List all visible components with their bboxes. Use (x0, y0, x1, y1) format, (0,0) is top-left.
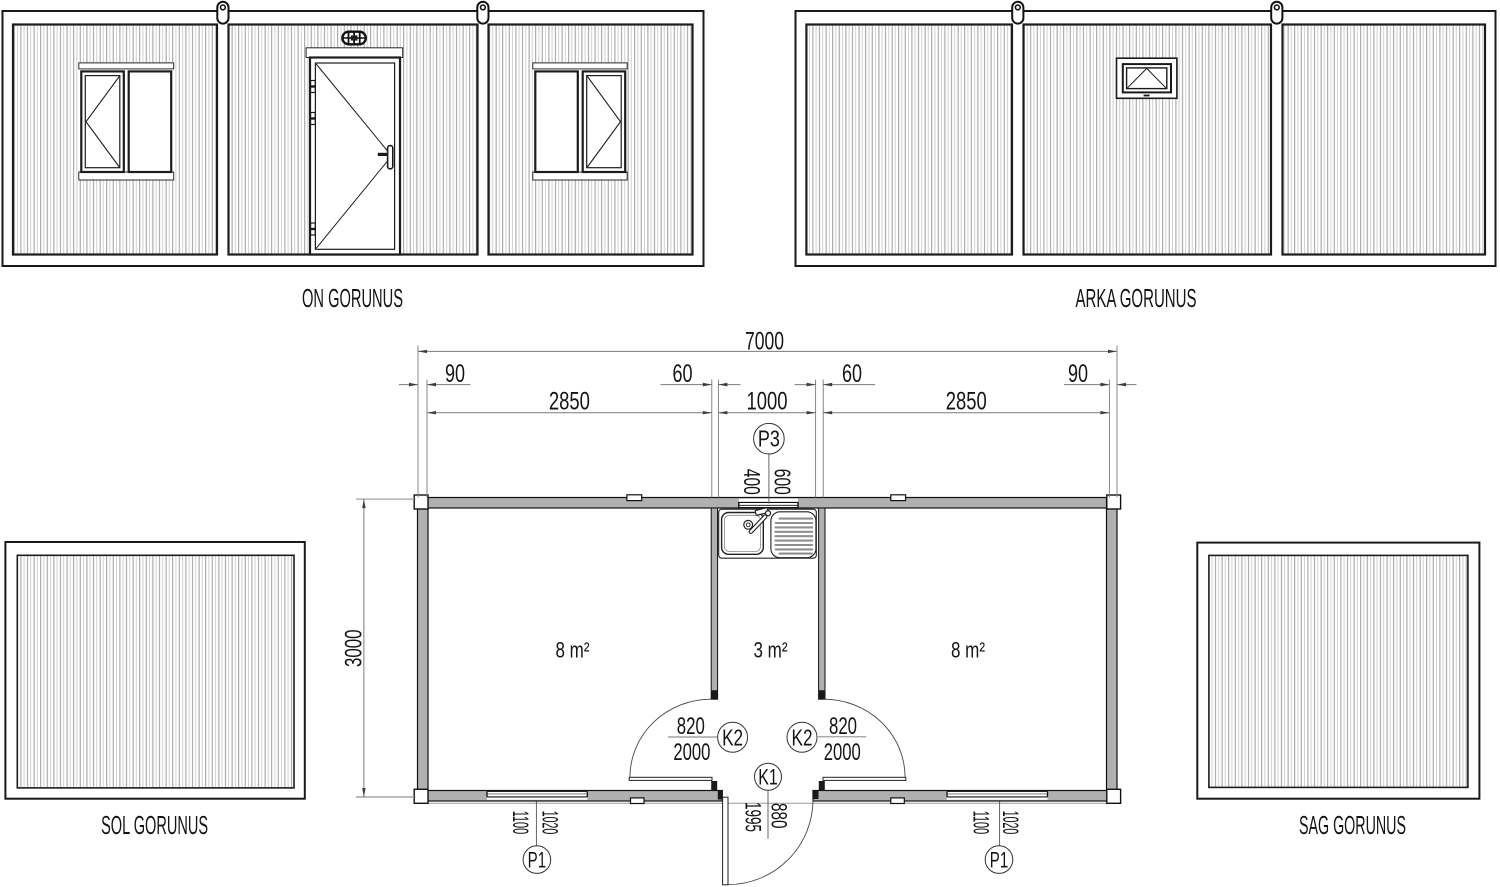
svg-text:P1: P1 (990, 847, 1009, 872)
svg-text:1020: 1020 (538, 811, 563, 835)
svg-text:2850: 2850 (946, 387, 987, 415)
svg-text:P3: P3 (758, 426, 780, 452)
svg-text:90: 90 (1068, 360, 1088, 388)
svg-text:1100: 1100 (969, 811, 994, 835)
svg-text:3000: 3000 (341, 630, 368, 668)
svg-text:K2: K2 (792, 724, 813, 750)
svg-text:8 m²: 8 m² (556, 638, 590, 663)
svg-text:P1: P1 (528, 847, 547, 872)
svg-text:ARKA GORUNUS: ARKA GORUNUS (1076, 283, 1197, 313)
svg-text:400: 400 (739, 469, 765, 495)
svg-text:1100: 1100 (508, 811, 533, 835)
svg-text:880: 880 (767, 803, 792, 829)
svg-text:SOL GORUNUS: SOL GORUNUS (101, 810, 208, 840)
svg-text:1995: 1995 (741, 802, 766, 832)
svg-text:7000: 7000 (745, 327, 784, 355)
svg-text:600: 600 (769, 469, 795, 495)
svg-text:2000: 2000 (824, 739, 861, 766)
svg-text:8 m²: 8 m² (951, 638, 985, 663)
svg-text:1000: 1000 (747, 387, 788, 415)
svg-text:3 m²: 3 m² (754, 638, 788, 663)
svg-text:60: 60 (673, 360, 693, 388)
svg-text:60: 60 (842, 360, 862, 388)
svg-text:SAG GORUNUS: SAG GORUNUS (1299, 810, 1406, 840)
svg-text:K2: K2 (722, 724, 743, 750)
svg-text:K1: K1 (758, 765, 778, 790)
svg-text:ON GORUNUS: ON GORUNUS (302, 283, 403, 313)
svg-text:2850: 2850 (549, 387, 590, 415)
svg-text:820: 820 (677, 713, 705, 740)
svg-text:90: 90 (445, 360, 465, 388)
svg-text:1020: 1020 (998, 811, 1023, 835)
svg-text:2000: 2000 (673, 739, 710, 766)
svg-text:820: 820 (829, 713, 857, 740)
